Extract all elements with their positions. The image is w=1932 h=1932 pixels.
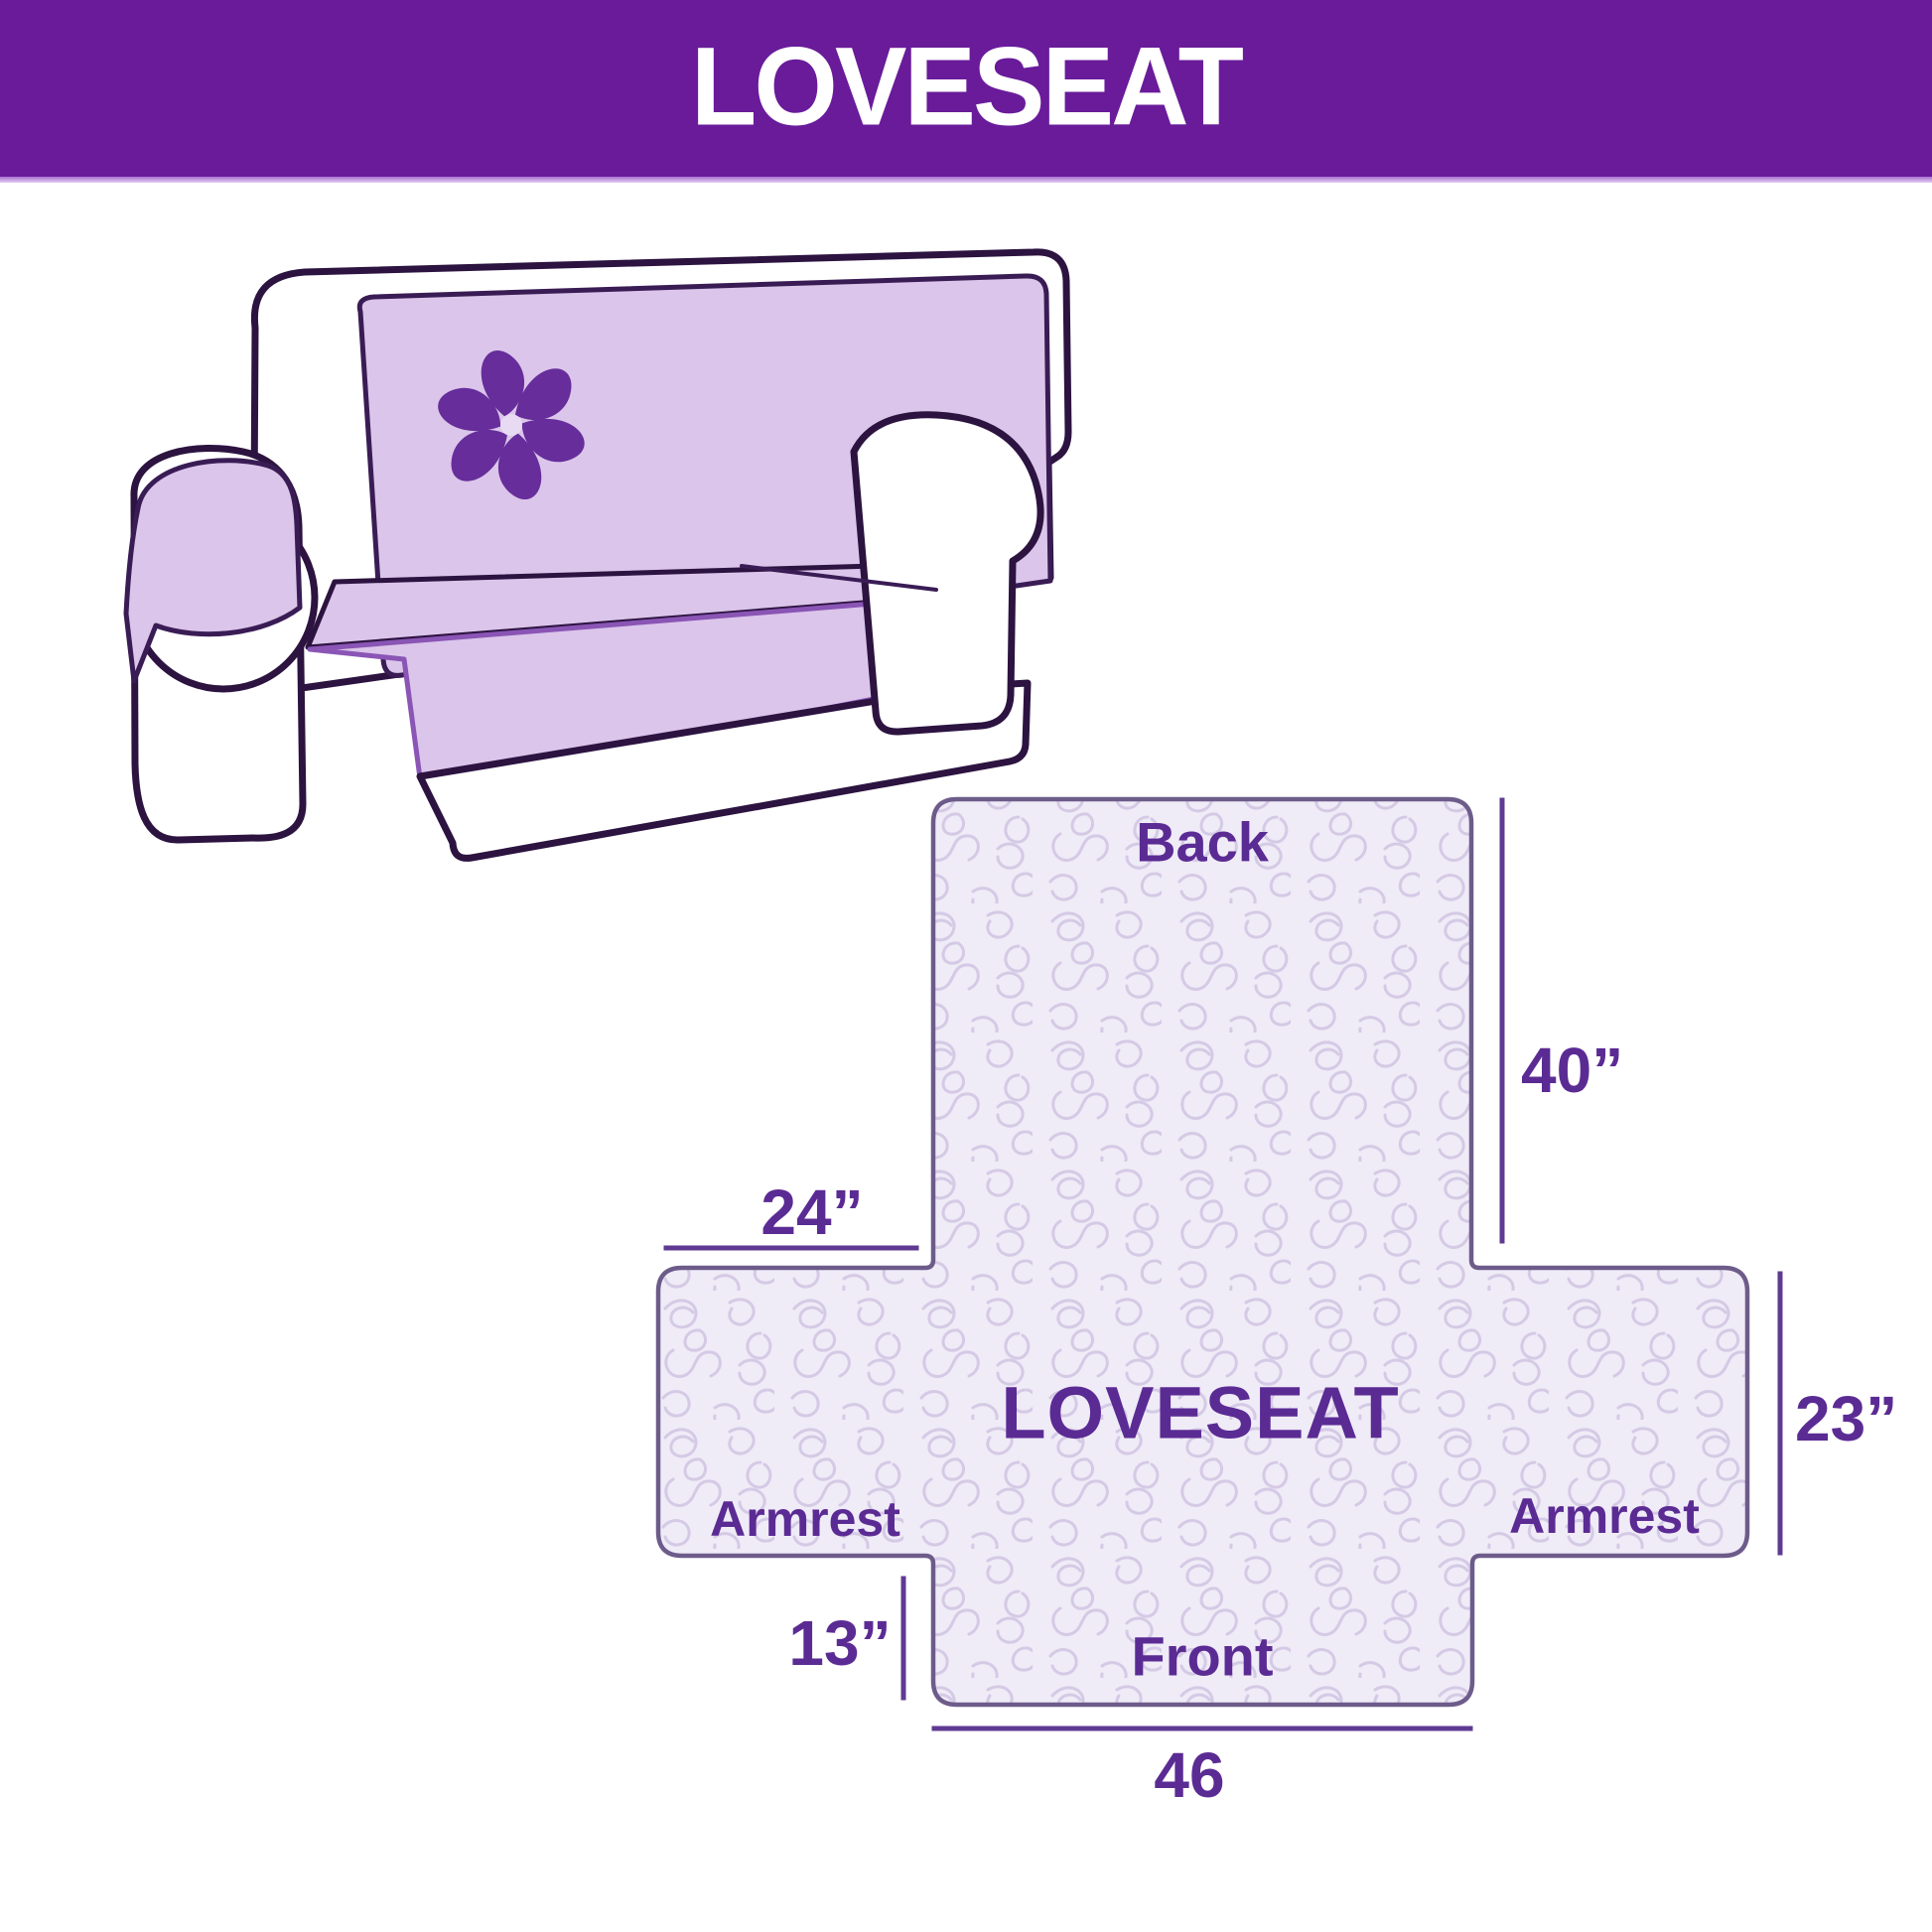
dim-back-height: 40” [1521,1034,1623,1107]
cover-cross-shape [658,799,1747,1705]
dim-front-flap-height: 13” [788,1606,891,1680]
dim-armrest-top-width: 24” [760,1175,863,1249]
cover-dimension-diagram [0,0,1932,1932]
back-panel-label: Back [1136,810,1269,875]
front-panel-label: Front [1131,1624,1273,1689]
page: LOVESEAT [0,0,1932,1932]
armrest-right-label: Armrest [1509,1487,1700,1545]
dim-front-width: 46 [1154,1738,1224,1812]
loveseat-center-label: LOVESEAT [1001,1371,1399,1455]
dim-armrest-side-height: 23” [1795,1382,1897,1455]
armrest-left-label: Armrest [710,1490,900,1548]
